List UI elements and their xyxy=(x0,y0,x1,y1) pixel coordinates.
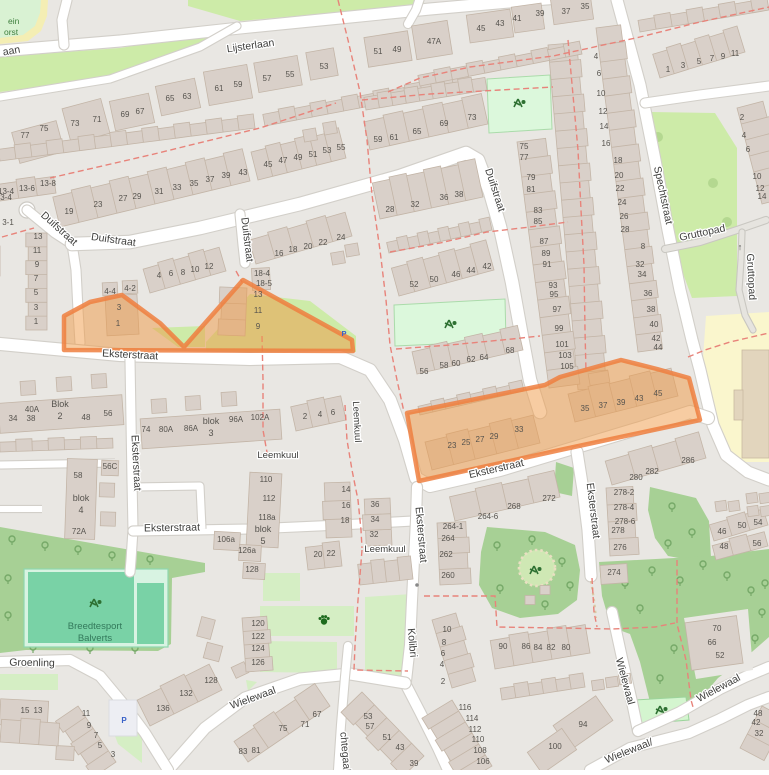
svg-text:32: 32 xyxy=(411,200,420,209)
svg-text:47A: 47A xyxy=(427,37,442,46)
svg-text:4-4: 4-4 xyxy=(104,287,116,296)
svg-text:18-4: 18-4 xyxy=(254,269,271,278)
svg-text:52: 52 xyxy=(410,280,419,289)
svg-text:85: 85 xyxy=(534,217,543,226)
svg-text:264-1: 264-1 xyxy=(443,522,464,531)
svg-text:Gruttopad: Gruttopad xyxy=(744,253,758,300)
svg-text:67: 67 xyxy=(136,107,145,116)
svg-text:56: 56 xyxy=(104,409,113,418)
svg-text:3: 3 xyxy=(34,303,39,312)
svg-text:56C: 56C xyxy=(103,462,118,471)
svg-text:14: 14 xyxy=(342,485,351,494)
svg-text:7: 7 xyxy=(34,274,39,283)
svg-text:24: 24 xyxy=(337,233,346,242)
svg-text:106a: 106a xyxy=(217,535,235,544)
svg-text:Groenling: Groenling xyxy=(9,657,55,670)
svg-text:5: 5 xyxy=(260,536,265,546)
svg-text:100: 100 xyxy=(548,742,562,751)
svg-text:47: 47 xyxy=(279,156,288,165)
svg-text:60: 60 xyxy=(452,359,461,368)
svg-text:12: 12 xyxy=(205,262,214,271)
svg-text:18-5: 18-5 xyxy=(256,279,273,288)
svg-text:81: 81 xyxy=(252,746,261,755)
svg-text:93: 93 xyxy=(549,281,558,290)
svg-text:53: 53 xyxy=(364,712,373,721)
svg-text:35: 35 xyxy=(581,2,590,11)
svg-text:274: 274 xyxy=(607,568,621,577)
svg-text:29: 29 xyxy=(490,432,499,441)
svg-text:8: 8 xyxy=(181,268,186,277)
svg-text:27: 27 xyxy=(119,194,128,203)
svg-text:Kolibri: Kolibri xyxy=(405,628,419,658)
svg-text:18: 18 xyxy=(289,245,298,254)
svg-text:55: 55 xyxy=(286,70,295,79)
svg-text:2: 2 xyxy=(441,677,446,686)
svg-text:18: 18 xyxy=(341,516,350,525)
svg-text:39: 39 xyxy=(222,171,231,180)
svg-text:Breedtesport: Breedtesport xyxy=(68,621,123,632)
svg-text:3: 3 xyxy=(117,303,122,312)
svg-text:23: 23 xyxy=(94,200,103,209)
svg-text:4: 4 xyxy=(594,52,599,61)
svg-text:P: P xyxy=(121,716,127,725)
svg-text:69: 69 xyxy=(121,110,130,119)
svg-text:32: 32 xyxy=(636,260,645,269)
svg-text:44: 44 xyxy=(654,343,663,352)
svg-text:51: 51 xyxy=(374,47,383,56)
svg-text:65: 65 xyxy=(413,127,422,136)
svg-text:57: 57 xyxy=(263,74,272,83)
svg-text:20: 20 xyxy=(615,171,624,180)
svg-text:14: 14 xyxy=(758,192,767,201)
svg-text:20: 20 xyxy=(304,242,313,251)
svg-text:64: 64 xyxy=(480,353,489,362)
svg-text:13-8: 13-8 xyxy=(40,179,57,188)
svg-text:49: 49 xyxy=(393,45,402,54)
svg-text:71: 71 xyxy=(93,115,102,124)
svg-text:96A: 96A xyxy=(229,415,244,424)
svg-text:29: 29 xyxy=(133,192,142,201)
svg-text:10: 10 xyxy=(753,172,762,181)
svg-text:40A: 40A xyxy=(25,405,40,414)
svg-text:103: 103 xyxy=(558,351,572,360)
svg-text:blok: blok xyxy=(255,524,272,534)
svg-text:7: 7 xyxy=(710,54,715,63)
svg-text:58: 58 xyxy=(440,361,449,370)
svg-text:9: 9 xyxy=(256,322,261,331)
svg-text:128: 128 xyxy=(204,676,218,685)
svg-text:22: 22 xyxy=(616,184,625,193)
svg-text:43: 43 xyxy=(635,394,644,403)
svg-text:38: 38 xyxy=(455,190,464,199)
svg-text:91: 91 xyxy=(543,260,552,269)
svg-text:13: 13 xyxy=(34,706,43,715)
svg-text:12: 12 xyxy=(599,107,608,116)
svg-text:84: 84 xyxy=(534,643,543,652)
svg-text:3: 3 xyxy=(208,428,213,438)
svg-text:272: 272 xyxy=(542,494,556,503)
svg-text:102A: 102A xyxy=(251,413,270,422)
svg-text:7: 7 xyxy=(94,731,99,740)
svg-text:79: 79 xyxy=(527,173,536,182)
svg-text:57: 57 xyxy=(366,722,375,731)
svg-text:3: 3 xyxy=(681,61,686,70)
svg-text:46: 46 xyxy=(718,527,727,536)
svg-text:14: 14 xyxy=(600,122,609,131)
svg-text:132: 132 xyxy=(179,689,193,698)
svg-text:1: 1 xyxy=(116,319,121,328)
svg-text:10: 10 xyxy=(191,265,200,274)
svg-text:4: 4 xyxy=(318,410,323,419)
svg-text:99: 99 xyxy=(555,324,564,333)
svg-text:69: 69 xyxy=(440,119,449,128)
svg-text:53: 53 xyxy=(323,146,332,155)
svg-text:44: 44 xyxy=(467,266,476,275)
svg-text:40: 40 xyxy=(650,320,659,329)
svg-text:2: 2 xyxy=(303,412,308,421)
svg-text:4: 4 xyxy=(440,660,445,669)
svg-text:37: 37 xyxy=(562,7,571,16)
svg-text:87: 87 xyxy=(540,237,549,246)
svg-text:71: 71 xyxy=(301,720,310,729)
svg-text:46: 46 xyxy=(452,270,461,279)
svg-text:45: 45 xyxy=(654,389,663,398)
svg-text:51: 51 xyxy=(309,150,318,159)
svg-text:42: 42 xyxy=(752,718,761,727)
svg-text:43: 43 xyxy=(396,743,405,752)
svg-text:50: 50 xyxy=(430,275,439,284)
svg-text:28: 28 xyxy=(386,205,395,214)
svg-text:136: 136 xyxy=(156,704,170,713)
svg-text:37: 37 xyxy=(599,401,608,410)
svg-text:56: 56 xyxy=(753,539,762,548)
svg-text:11: 11 xyxy=(33,246,42,255)
svg-text:112: 112 xyxy=(263,494,276,503)
svg-text:4: 4 xyxy=(157,271,162,280)
svg-text:11: 11 xyxy=(731,49,740,58)
svg-text:8: 8 xyxy=(641,242,646,251)
svg-text:53: 53 xyxy=(320,62,329,71)
svg-text:13: 13 xyxy=(34,232,43,241)
svg-text:28: 28 xyxy=(621,225,630,234)
svg-text:11: 11 xyxy=(82,709,91,718)
svg-text:23: 23 xyxy=(448,441,457,450)
svg-text:20: 20 xyxy=(314,550,323,559)
svg-text:101: 101 xyxy=(555,340,569,349)
svg-text:32: 32 xyxy=(370,530,379,539)
svg-text:27: 27 xyxy=(476,435,485,444)
svg-text:128: 128 xyxy=(245,565,259,574)
svg-text:31: 31 xyxy=(155,187,164,196)
svg-text:4-2: 4-2 xyxy=(124,284,136,293)
svg-text:1: 1 xyxy=(666,65,671,74)
svg-text:110: 110 xyxy=(260,475,273,484)
svg-text:8: 8 xyxy=(442,638,447,647)
svg-text:32: 32 xyxy=(755,729,764,738)
svg-text:65: 65 xyxy=(166,94,175,103)
svg-text:116: 116 xyxy=(459,703,472,712)
svg-text:260: 260 xyxy=(441,571,455,580)
svg-text:9: 9 xyxy=(35,260,40,269)
svg-text:75: 75 xyxy=(40,124,49,133)
svg-text:51: 51 xyxy=(383,733,392,742)
svg-text:37: 37 xyxy=(206,175,215,184)
svg-text:34: 34 xyxy=(371,515,380,524)
svg-text:54: 54 xyxy=(754,518,763,527)
svg-text:15: 15 xyxy=(21,706,30,715)
svg-text:82: 82 xyxy=(547,643,556,652)
svg-text:114: 114 xyxy=(466,714,479,723)
svg-text:262: 262 xyxy=(439,550,453,559)
svg-text:1: 1 xyxy=(34,317,39,326)
svg-text:56: 56 xyxy=(420,367,429,376)
svg-text:120: 120 xyxy=(251,619,265,628)
svg-text:6: 6 xyxy=(169,269,174,278)
svg-text:106: 106 xyxy=(476,757,490,766)
svg-text:P: P xyxy=(341,329,346,338)
svg-text:95: 95 xyxy=(550,290,559,299)
svg-text:73: 73 xyxy=(468,113,477,122)
svg-text:2: 2 xyxy=(57,411,62,421)
svg-text:Leemkuul: Leemkuul xyxy=(257,450,298,461)
svg-text:34: 34 xyxy=(9,414,18,423)
svg-text:80A: 80A xyxy=(159,425,174,434)
svg-text:75: 75 xyxy=(279,724,288,733)
svg-text:5: 5 xyxy=(697,57,702,66)
svg-text:108: 108 xyxy=(473,746,487,755)
svg-text:61: 61 xyxy=(390,133,399,142)
svg-text:122: 122 xyxy=(251,632,265,641)
svg-text:278-6: 278-6 xyxy=(615,517,636,526)
svg-text:52: 52 xyxy=(716,651,725,660)
svg-text:43: 43 xyxy=(239,168,248,177)
svg-text:73: 73 xyxy=(71,119,80,128)
svg-text:276: 276 xyxy=(613,543,627,552)
svg-text:89: 89 xyxy=(542,249,551,258)
svg-text:6: 6 xyxy=(331,408,336,417)
svg-text:58: 58 xyxy=(74,471,83,480)
svg-text:Blok: Blok xyxy=(51,399,69,409)
svg-text:66: 66 xyxy=(708,638,717,647)
svg-text:105: 105 xyxy=(560,362,574,371)
svg-text:Eksterstraat: Eksterstraat xyxy=(144,522,200,535)
svg-text:3: 3 xyxy=(111,750,116,759)
svg-text:83: 83 xyxy=(239,747,248,756)
svg-text:61: 61 xyxy=(215,84,224,93)
svg-text:48: 48 xyxy=(720,542,729,551)
svg-text:86A: 86A xyxy=(184,424,199,433)
svg-text:97: 97 xyxy=(553,305,562,314)
svg-text:94: 94 xyxy=(579,720,588,729)
svg-text:48: 48 xyxy=(754,709,763,718)
svg-text:110: 110 xyxy=(472,735,485,744)
svg-text:9: 9 xyxy=(87,721,92,730)
svg-text:16: 16 xyxy=(275,249,284,258)
svg-text:70: 70 xyxy=(713,624,722,633)
svg-text:19: 19 xyxy=(65,207,74,216)
svg-text:39: 39 xyxy=(617,398,626,407)
svg-text:35: 35 xyxy=(190,179,199,188)
svg-text:80: 80 xyxy=(562,643,571,652)
svg-text:10: 10 xyxy=(443,625,452,634)
svg-text:6: 6 xyxy=(597,69,602,78)
svg-text:268: 268 xyxy=(507,502,521,511)
svg-text:3-4: 3-4 xyxy=(0,193,12,202)
svg-text:38: 38 xyxy=(27,414,36,423)
svg-text:13-6: 13-6 xyxy=(19,184,36,193)
svg-text:81: 81 xyxy=(527,185,536,194)
svg-text:59: 59 xyxy=(374,135,383,144)
svg-text:49: 49 xyxy=(294,153,303,162)
svg-text:38: 38 xyxy=(647,305,656,314)
svg-text:72A: 72A xyxy=(72,527,87,536)
svg-text:55: 55 xyxy=(337,143,346,152)
svg-text:5: 5 xyxy=(98,741,103,750)
svg-text:22: 22 xyxy=(327,549,336,558)
svg-text:45: 45 xyxy=(477,24,486,33)
svg-text:Leemkuul: Leemkuul xyxy=(364,544,405,555)
svg-text:Balverts: Balverts xyxy=(78,633,113,644)
svg-text:25: 25 xyxy=(462,438,471,447)
svg-text:68: 68 xyxy=(506,346,515,355)
svg-text:blok: blok xyxy=(203,416,220,426)
svg-text:10: 10 xyxy=(597,89,606,98)
svg-text:36: 36 xyxy=(440,193,449,202)
svg-text:286: 286 xyxy=(681,456,695,465)
svg-text:22: 22 xyxy=(319,238,328,247)
svg-text:264-6: 264-6 xyxy=(478,512,499,521)
svg-text:282: 282 xyxy=(645,467,659,476)
svg-text:90: 90 xyxy=(499,642,508,651)
svg-text:18: 18 xyxy=(614,156,623,165)
svg-text:39: 39 xyxy=(536,9,545,18)
svg-text:13: 13 xyxy=(254,290,263,299)
svg-text:124: 124 xyxy=(251,644,265,653)
svg-text:6: 6 xyxy=(746,145,751,154)
svg-text:67: 67 xyxy=(313,710,322,719)
svg-text:280: 280 xyxy=(629,473,643,482)
svg-text:4: 4 xyxy=(742,131,747,140)
svg-text:278: 278 xyxy=(611,526,625,535)
svg-text:126: 126 xyxy=(251,658,265,667)
svg-text:4: 4 xyxy=(78,505,83,515)
svg-text:83: 83 xyxy=(534,206,543,215)
svg-text:74: 74 xyxy=(142,425,151,434)
svg-text:Leemkuul: Leemkuul xyxy=(350,401,363,443)
svg-text:33: 33 xyxy=(515,425,524,434)
svg-text:36: 36 xyxy=(371,500,380,509)
svg-text:34: 34 xyxy=(638,270,647,279)
svg-text:41: 41 xyxy=(513,14,522,23)
svg-text:75: 75 xyxy=(520,142,529,151)
svg-text:112: 112 xyxy=(469,725,482,734)
svg-text:59: 59 xyxy=(234,80,243,89)
svg-text:42: 42 xyxy=(652,334,661,343)
svg-text:278-4: 278-4 xyxy=(614,503,635,512)
svg-text:orst: orst xyxy=(4,27,19,37)
svg-text:86: 86 xyxy=(522,642,531,651)
svg-text:16: 16 xyxy=(342,501,351,510)
svg-text:118a: 118a xyxy=(258,513,276,522)
svg-text:33: 33 xyxy=(173,183,182,192)
svg-text:43: 43 xyxy=(496,19,505,28)
svg-text:278-2: 278-2 xyxy=(614,488,635,497)
svg-text:9: 9 xyxy=(721,52,726,61)
svg-text:77: 77 xyxy=(21,131,30,140)
svg-text:11: 11 xyxy=(254,306,263,315)
svg-text:36: 36 xyxy=(644,289,653,298)
svg-text:6: 6 xyxy=(441,649,446,658)
svg-text:42: 42 xyxy=(483,262,492,271)
svg-text:77: 77 xyxy=(520,153,529,162)
svg-text:blok: blok xyxy=(73,493,90,503)
svg-text:264: 264 xyxy=(441,534,455,543)
svg-text:↑: ↑ xyxy=(738,242,743,252)
svg-text:3-1: 3-1 xyxy=(2,218,14,227)
svg-text:62: 62 xyxy=(467,355,476,364)
svg-text:5: 5 xyxy=(34,288,39,297)
svg-text:126a: 126a xyxy=(238,546,256,555)
svg-text:2: 2 xyxy=(740,113,745,122)
svg-text:24: 24 xyxy=(618,198,627,207)
svg-text:ein: ein xyxy=(8,16,20,26)
svg-text:26: 26 xyxy=(620,212,629,221)
svg-text:39: 39 xyxy=(410,759,419,768)
svg-text:48: 48 xyxy=(82,413,91,422)
svg-text:35: 35 xyxy=(581,404,590,413)
svg-text:50: 50 xyxy=(738,521,747,530)
svg-text:16: 16 xyxy=(602,139,611,148)
svg-text:45: 45 xyxy=(264,160,273,169)
svg-text:63: 63 xyxy=(183,92,192,101)
